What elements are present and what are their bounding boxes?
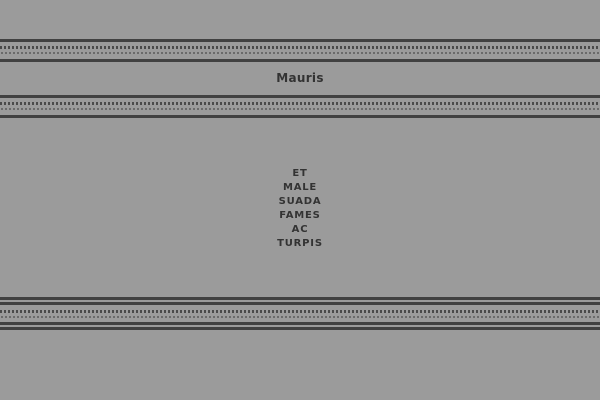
body-text-line: MALE [0, 181, 600, 195]
ornament-band-bottom [0, 297, 600, 330]
page-title: Mauris [0, 71, 600, 85]
body-text-line: SUADA [0, 195, 600, 209]
ornament-band-header-bottom [0, 95, 600, 118]
solid-rule [0, 95, 600, 98]
solid-rule [0, 297, 600, 300]
ornament-band-top [0, 39, 600, 62]
fine-dot-rule [0, 316, 600, 318]
fine-dot-rule [0, 108, 600, 110]
page: { "theme": { "background_color": "#9b9b9… [0, 0, 600, 400]
solid-rule [0, 327, 600, 330]
fine-dot-rule [0, 52, 600, 54]
body-text-line: AC [0, 223, 600, 237]
square-dot-rule [0, 102, 600, 105]
solid-rule [0, 322, 600, 325]
square-dot-rule [0, 46, 600, 49]
square-dot-rule [0, 310, 600, 313]
solid-rule [0, 115, 600, 118]
body-text-line: ET [0, 167, 600, 181]
solid-rule [0, 302, 600, 305]
solid-rule [0, 39, 600, 42]
body-text-line: TURPIS [0, 237, 600, 251]
solid-rule [0, 59, 600, 62]
body-text-line: FAMES [0, 209, 600, 223]
body-text: ET MALE SUADA FAMES AC TURPIS [0, 167, 600, 251]
